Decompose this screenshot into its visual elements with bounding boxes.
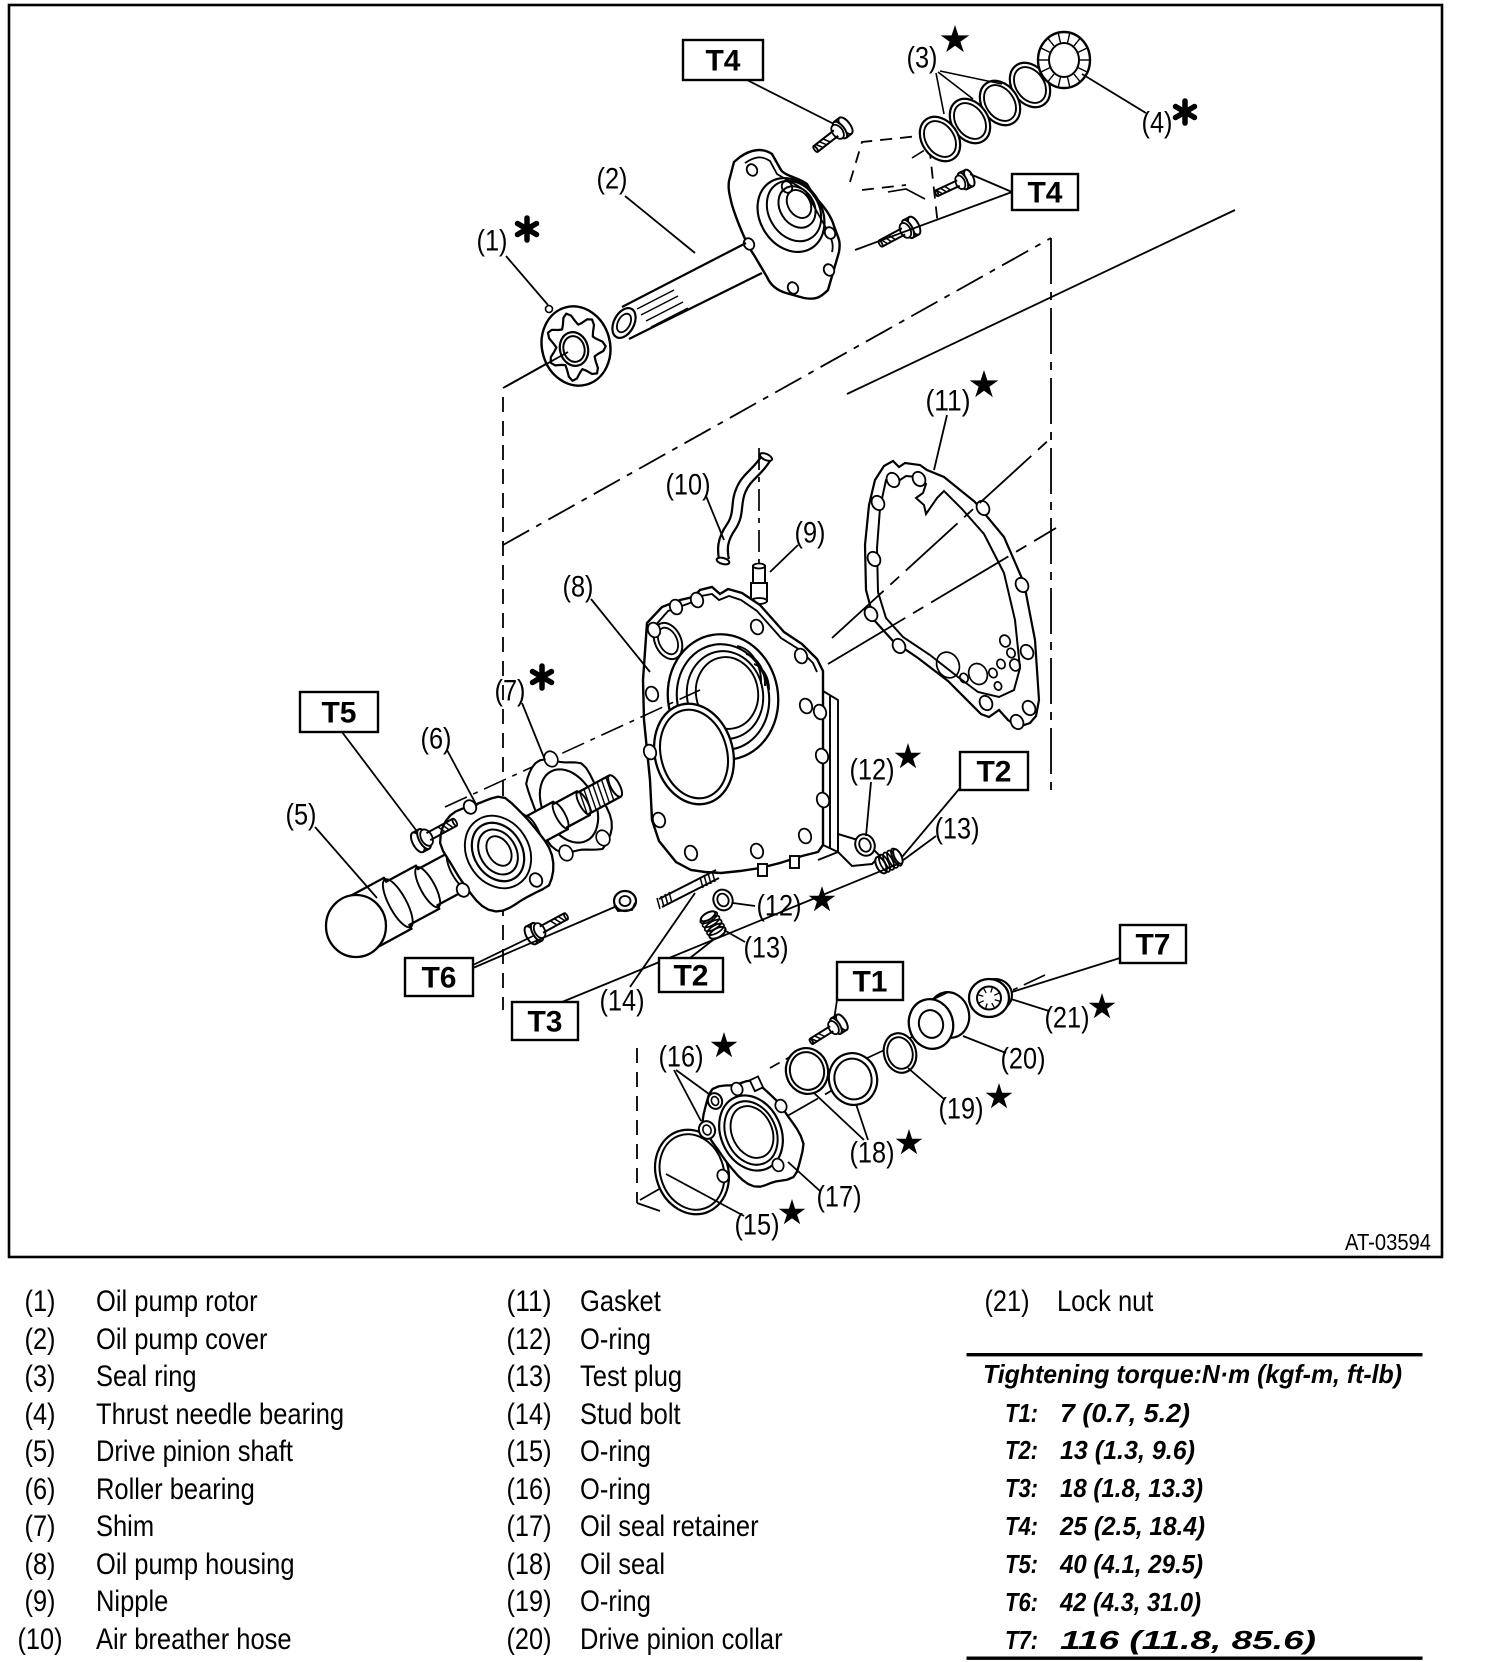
svg-text:(18): (18) — [850, 1137, 895, 1170]
svg-text:T3: T3 — [527, 1006, 562, 1039]
svg-text:(4): (4) — [25, 1398, 56, 1431]
svg-text:Oil pump rotor: Oil pump rotor — [96, 1285, 258, 1318]
svg-text:T3:: T3: — [1005, 1473, 1038, 1503]
svg-text:(11): (11) — [926, 385, 971, 418]
svg-text:T1: T1 — [852, 966, 887, 999]
svg-text:(19): (19) — [939, 1093, 984, 1126]
svg-text:(15): (15) — [507, 1435, 552, 1468]
svg-text:116 (11.8, 85.6): 116 (11.8, 85.6) — [1060, 1625, 1316, 1655]
svg-text:Lock nut: Lock nut — [1057, 1285, 1154, 1318]
svg-text:(21): (21) — [1045, 1002, 1090, 1035]
svg-text:AT-03594: AT-03594 — [1345, 1229, 1431, 1255]
svg-text:T5:: T5: — [1005, 1549, 1038, 1579]
svg-text:Oil pump housing: Oil pump housing — [96, 1548, 295, 1581]
svg-text:(2): (2) — [597, 163, 628, 196]
svg-text:Thrust needle bearing: Thrust needle bearing — [96, 1398, 344, 1431]
svg-text:Tightening torque:N·m (kgf-m,: Tightening torque:N·m (kgf-m, ft-lb) — [983, 1359, 1402, 1389]
svg-text:(12): (12) — [757, 890, 802, 923]
svg-text:(10): (10) — [666, 469, 711, 502]
svg-text:T7:: T7: — [1005, 1625, 1038, 1655]
svg-text:Oil seal: Oil seal — [580, 1548, 665, 1581]
svg-text:(14): (14) — [600, 985, 645, 1018]
svg-text:(4): (4) — [1142, 107, 1173, 140]
svg-text:T4:: T4: — [1005, 1511, 1038, 1541]
svg-text:T6: T6 — [421, 962, 456, 995]
svg-text:(16): (16) — [659, 1041, 704, 1074]
svg-text:(8): (8) — [563, 571, 594, 604]
svg-text:T4: T4 — [1027, 177, 1062, 210]
svg-text:(19): (19) — [507, 1585, 552, 1618]
svg-text:Drive pinion shaft: Drive pinion shaft — [96, 1435, 294, 1468]
svg-text:T4: T4 — [705, 45, 740, 78]
svg-text:(6): (6) — [25, 1473, 56, 1506]
svg-text:Stud bolt: Stud bolt — [580, 1398, 681, 1431]
svg-text:O-ring: O-ring — [580, 1435, 651, 1468]
svg-text:(3): (3) — [25, 1360, 56, 1393]
svg-text:Test plug: Test plug — [580, 1360, 682, 1393]
svg-text:(10): (10) — [18, 1623, 63, 1656]
svg-text:Oil pump cover: Oil pump cover — [96, 1323, 268, 1356]
svg-text:(9): (9) — [795, 517, 826, 550]
svg-text:Seal ring: Seal ring — [96, 1360, 197, 1393]
svg-text:(14): (14) — [507, 1398, 552, 1431]
svg-text:(21): (21) — [985, 1285, 1030, 1318]
svg-text:(7): (7) — [495, 675, 526, 708]
svg-text:(8): (8) — [25, 1548, 56, 1581]
svg-text:(12): (12) — [850, 754, 895, 787]
svg-text:T1:: T1: — [1005, 1398, 1038, 1428]
svg-text:O-ring: O-ring — [580, 1323, 651, 1356]
svg-text:(20): (20) — [1001, 1043, 1046, 1076]
svg-text:(16): (16) — [507, 1473, 552, 1506]
svg-text:Oil seal retainer: Oil seal retainer — [580, 1510, 759, 1543]
svg-text:(12): (12) — [507, 1323, 552, 1356]
svg-text:7 (0.7, 5.2): 7 (0.7, 5.2) — [1060, 1398, 1190, 1428]
svg-text:T2:: T2: — [1005, 1435, 1038, 1465]
svg-text:(9): (9) — [25, 1585, 56, 1618]
svg-text:42 (4.3, 31.0): 42 (4.3, 31.0) — [1059, 1587, 1201, 1617]
svg-text:Drive pinion collar: Drive pinion collar — [580, 1623, 783, 1656]
svg-text:40 (4.1, 29.5): 40 (4.1, 29.5) — [1059, 1549, 1203, 1579]
svg-text:(5): (5) — [25, 1435, 56, 1468]
svg-text:18 (1.8, 13.3): 18 (1.8, 13.3) — [1060, 1473, 1203, 1503]
svg-text:(3): (3) — [907, 42, 938, 75]
svg-text:(2): (2) — [25, 1323, 56, 1356]
svg-text:(1): (1) — [25, 1285, 56, 1318]
svg-text:(5): (5) — [286, 799, 317, 832]
svg-text:(11): (11) — [507, 1285, 552, 1318]
svg-text:(20): (20) — [507, 1623, 552, 1656]
svg-text:(18): (18) — [507, 1548, 552, 1581]
svg-text:O-ring: O-ring — [580, 1473, 651, 1506]
svg-text:Gasket: Gasket — [580, 1285, 661, 1318]
svg-text:(13): (13) — [935, 813, 980, 846]
svg-text:(13): (13) — [507, 1360, 552, 1393]
svg-text:O-ring: O-ring — [580, 1585, 651, 1618]
svg-text:13 (1.3, 9.6): 13 (1.3, 9.6) — [1060, 1435, 1195, 1465]
svg-text:T7: T7 — [1135, 929, 1170, 962]
svg-text:(1): (1) — [477, 225, 508, 258]
svg-text:Air breather hose: Air breather hose — [96, 1623, 292, 1656]
svg-text:T5: T5 — [321, 697, 356, 730]
svg-text:(13): (13) — [744, 932, 789, 965]
svg-text:T2: T2 — [673, 960, 708, 993]
svg-text:(17): (17) — [507, 1510, 552, 1543]
svg-text:Shim: Shim — [96, 1510, 154, 1543]
svg-text:T6:: T6: — [1005, 1587, 1038, 1617]
svg-text:Roller bearing: Roller bearing — [96, 1473, 255, 1506]
svg-text:(7): (7) — [25, 1510, 56, 1543]
svg-text:Nipple: Nipple — [96, 1585, 168, 1618]
svg-text:T2: T2 — [976, 756, 1011, 789]
svg-text:(17): (17) — [817, 1181, 862, 1214]
svg-text:(15): (15) — [735, 1209, 780, 1242]
svg-text:25 (2.5, 18.4): 25 (2.5, 18.4) — [1059, 1511, 1205, 1541]
